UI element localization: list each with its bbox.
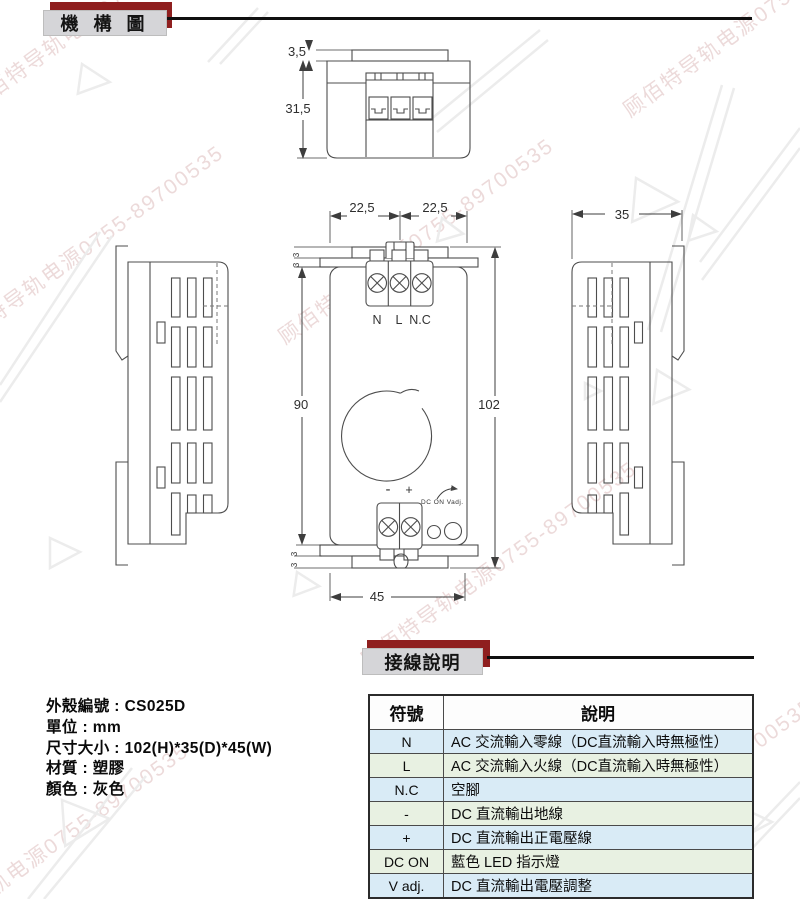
symbol-cell: L	[369, 754, 444, 778]
table-row: + DC 直流輸出正電壓線	[369, 826, 753, 850]
dim-label-step2: 3	[292, 262, 301, 267]
symbol-cell: -	[369, 802, 444, 826]
terminal-label-n: N	[372, 313, 381, 327]
table-row: V adj. DC 直流輸出電壓調整	[369, 874, 753, 899]
dim-label-body-height: 90	[294, 397, 308, 412]
table-header-row: 符號 說明	[369, 695, 753, 730]
symbol-cell: V adj.	[369, 874, 444, 899]
info-unit: 單位 : mm	[46, 718, 272, 739]
desc-cell: AC 交流輸入零線（DC直流輸入時無極性）	[444, 730, 754, 754]
dim-label-step4: 3	[290, 562, 299, 567]
v-adj-pot-circle	[445, 523, 462, 540]
watermark-text: 顾佰特导轨电源0755-89700535	[274, 134, 558, 349]
header-symbol-cell: 符號	[369, 695, 444, 730]
watermark-text: 顾佰特导轨电源0755-89700535	[0, 141, 228, 356]
info-color: 顏色 : 灰色	[46, 780, 272, 801]
vent-slots-right	[588, 278, 643, 535]
symbol-cell: N.C	[369, 778, 444, 802]
wiring-table: 符號 說明 N AC 交流輸入零線（DC直流輸入時無極性） L AC 交流輸入火…	[368, 694, 754, 899]
section1-title: 機 構 圖	[60, 10, 149, 36]
section2-rule-line	[487, 656, 754, 659]
info-material: 材質 : 塑膠	[46, 759, 272, 780]
table-row: N AC 交流輸入零線（DC直流輸入時無極性）	[369, 730, 753, 754]
dim-label-half-left: 22,5	[349, 200, 374, 215]
symbol-cell: +	[369, 826, 444, 850]
desc-cell: AC 交流輸入火線（DC直流輸入時無極性）	[444, 754, 754, 778]
dim-label-side-depth: 35	[615, 207, 629, 222]
right-side-view-drawing: 35	[572, 207, 684, 565]
table-row: DC ON 藍色 LED 指示燈	[369, 850, 753, 874]
dim-label-half-right: 22,5	[422, 200, 447, 215]
output-plus-label: +	[405, 483, 412, 497]
dim-label-step3: 3	[290, 551, 299, 556]
terminal-label-l: L	[396, 313, 403, 327]
table-row: - DC 直流輸出地線	[369, 802, 753, 826]
left-side-view-drawing	[116, 246, 228, 565]
terminal-label-nc: N.C	[409, 313, 431, 327]
vent-slots-left	[157, 278, 212, 535]
desc-cell: DC 直流輸出電壓調整	[444, 874, 754, 899]
dim-label-total-height: 102	[478, 397, 500, 412]
section2-header: 接線說明	[362, 648, 483, 675]
desc-cell: DC 直流輸出正電壓線	[444, 826, 754, 850]
section1-rule-line	[166, 17, 752, 20]
output-minus-label: -	[386, 481, 391, 498]
dim-label-body-width: 45	[370, 589, 384, 604]
shell-info-block: 外殼編號 : CS025D 單位 : mm 尺寸大小 : 102(H)*35(D…	[46, 697, 272, 801]
info-size: 尺寸大小 : 102(H)*35(D)*45(W)	[46, 739, 272, 760]
info-shell-number: 外殼編號 : CS025D	[46, 697, 272, 718]
section1-header: 機 構 圖	[43, 10, 167, 36]
front-view-drawing: N L N.C - + DC ON Vadj. 22,5 22,5 90	[290, 200, 501, 604]
table-row: L AC 交流輸入火線（DC直流輸入時無極性）	[369, 754, 753, 778]
section2-title: 接線說明	[385, 649, 461, 675]
dim-label-top-thickness: 3,5	[288, 44, 306, 59]
symbol-cell: N	[369, 730, 444, 754]
panel-print-label: DC ON Vadj.	[421, 499, 464, 506]
symbol-cell: DC ON	[369, 850, 444, 874]
dim-label-top-depth: 31,5	[285, 101, 310, 116]
desc-cell: 空腳	[444, 778, 754, 802]
dc-on-led-circle	[428, 526, 441, 539]
datasheet-page: { "section1": { "title": "機 構 圖" }, "sec…	[0, 0, 800, 899]
desc-cell: 藍色 LED 指示燈	[444, 850, 754, 874]
header-desc-cell: 說明	[444, 695, 754, 730]
desc-cell: DC 直流輸出地線	[444, 802, 754, 826]
top-view-drawing: 3,5 31,5	[285, 43, 470, 158]
table-row: N.C 空腳	[369, 778, 753, 802]
dim-label-step1: 3	[292, 252, 301, 257]
